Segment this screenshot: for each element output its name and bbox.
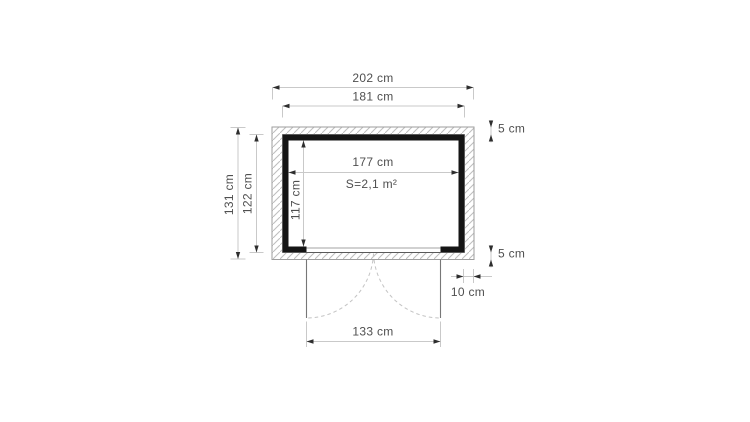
dim-label-overhang-front: 5 cm (498, 122, 525, 136)
dim-label-wall-width: 181 cm (352, 90, 393, 104)
area-label: S=2,1 m² (346, 177, 397, 191)
dim-overhang-side: 10 cm (451, 269, 492, 299)
dim-label-interior-width: 177 cm (352, 155, 393, 169)
dim-label-door-opening: 133 cm (352, 325, 393, 339)
door-swing-arc-left (307, 254, 374, 319)
dim-wall-width: 181 cm (283, 90, 465, 118)
dim-overhang-front: 5 cm (491, 120, 525, 143)
floor-plan-canvas: 202 cm 181 cm 131 cm 122 cm 177 cm 117 c… (0, 0, 750, 422)
dim-label-wall-depth: 122 cm (241, 173, 255, 214)
dim-label-roof-width: 202 cm (352, 71, 393, 85)
dim-label-overhang-side: 10 cm (451, 285, 485, 299)
extension-lines-wall-width (283, 106, 465, 118)
dim-overhang-rear: 5 cm (491, 245, 525, 268)
dim-label-interior-depth: 117 cm (289, 180, 303, 220)
floor-plan-drawing: 202 cm 181 cm 131 cm 122 cm 177 cm 117 c… (0, 0, 750, 422)
dim-door-opening: 133 cm (307, 322, 441, 348)
dim-label-overhang-rear: 5 cm (498, 247, 525, 261)
door-swing-arc-right (374, 254, 441, 319)
dim-label-roof-depth: 131 cm (222, 174, 236, 215)
double-door (307, 254, 441, 319)
dim-wall-depth: 122 cm (241, 135, 264, 253)
